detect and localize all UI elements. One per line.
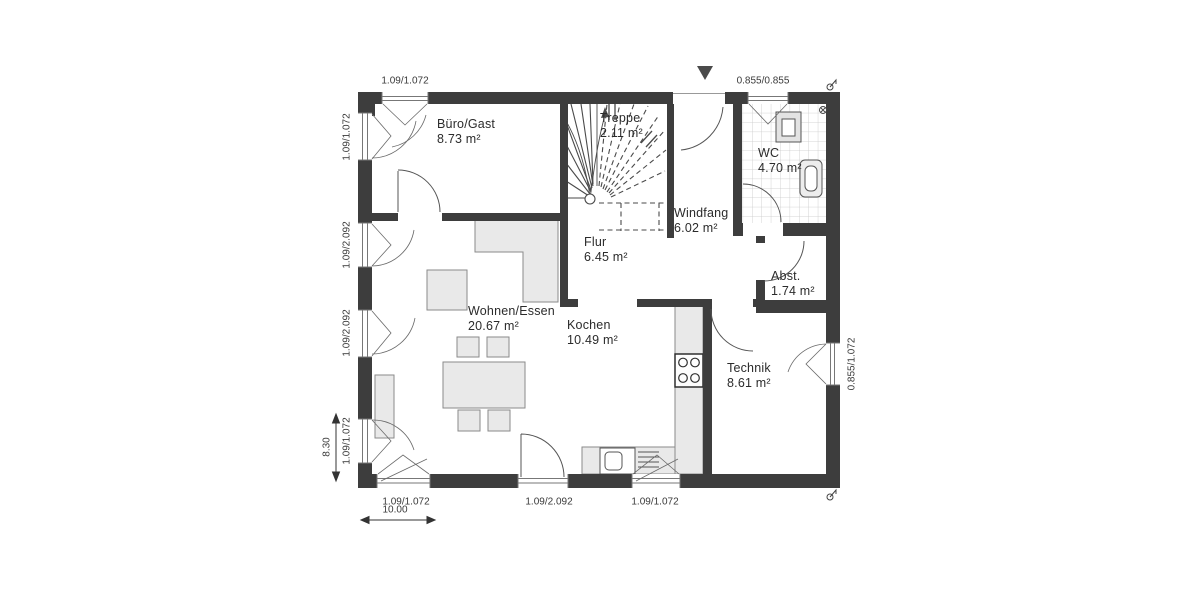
room-label-buero-gast: Büro/Gast 8.73 m² — [437, 117, 495, 147]
stove — [675, 354, 703, 387]
window-top-wc — [748, 92, 788, 104]
window-left-2 — [358, 223, 372, 267]
dim-left-4: 1.09/1.072 — [342, 417, 353, 464]
dim-top-left: 1.09/1.072 — [381, 76, 428, 87]
chair — [458, 410, 480, 431]
wall-abst-bottom — [756, 300, 826, 313]
window-left-4 — [358, 419, 372, 463]
terrace-door-arc — [521, 434, 564, 477]
wall-flur-bottom — [637, 299, 712, 307]
room-label-windfang: Windfang 6.02 m² — [674, 206, 728, 236]
dim-top-right: 0.855/0.855 — [737, 76, 790, 87]
side-table — [427, 270, 467, 310]
window-bottom-2 — [632, 474, 680, 488]
room-label-flur: Flur 6.45 m² — [584, 235, 628, 265]
room-label-technik: Technik 8.61 m² — [727, 361, 771, 391]
sofa-bench — [375, 375, 394, 438]
floorplan-canvas: Büro/Gast 8.73 m² Treppe 2.11 m² WC 4.70… — [0, 0, 1200, 600]
dim-left-3: 1.09/2.092 — [342, 309, 353, 356]
toilet — [800, 160, 822, 197]
chair — [488, 410, 510, 431]
floorplan-drawing — [0, 0, 1200, 600]
window-bottom-1 — [377, 474, 430, 488]
wall-abst-left — [756, 280, 765, 302]
wall-flur-bottom — [560, 299, 578, 307]
terrace-door — [518, 474, 568, 488]
dim-bottom-2: 1.09/2.092 — [525, 497, 572, 508]
furniture — [375, 220, 703, 474]
room-label-abst: Abst. 1.74 m² — [771, 269, 815, 299]
entrance-arrow-icon — [697, 66, 713, 80]
room-label-wohnen-essen: Wohnen/Essen 20.67 m² — [468, 304, 555, 334]
wall-abst-left — [756, 236, 765, 243]
wall-stair-left — [560, 104, 568, 299]
wall-windfang-left — [667, 104, 674, 238]
wall-wc-bottom — [733, 223, 743, 236]
wall-kochen-technik — [703, 299, 712, 474]
wall-technik-jamb — [753, 299, 756, 307]
buero-door-arc — [398, 170, 440, 212]
kitchen-counter-vertical — [675, 306, 703, 474]
dim-left-1: 1.09/1.072 — [342, 113, 353, 160]
benchmark-icon — [827, 490, 836, 500]
room-label-kochen: Kochen 10.49 m² — [567, 318, 618, 348]
wc-sink — [776, 112, 801, 142]
dim-bottom-3: 1.09/1.072 — [631, 497, 678, 508]
stair-newel-post — [585, 194, 595, 204]
dim-right-1: 0.855/1.072 — [847, 338, 858, 391]
wall-wc-bottom — [783, 223, 840, 236]
vent-icon — [820, 107, 827, 114]
chair — [487, 337, 509, 357]
room-label-treppe: Treppe 2.11 m² — [600, 111, 643, 141]
room-label-wc: WC 4.70 m² — [758, 146, 802, 176]
dim-left-2: 1.09/2.092 — [342, 221, 353, 268]
sideboard — [475, 220, 558, 302]
window-left-1 — [358, 113, 372, 160]
wall-exterior-right — [826, 92, 840, 488]
benchmark-icon — [827, 80, 836, 90]
dining-table — [443, 362, 525, 408]
window-top-buero — [382, 92, 428, 104]
chair — [457, 337, 479, 357]
entry-door-arc — [681, 107, 723, 150]
technik-door-arc — [711, 309, 753, 351]
duct-block — [733, 162, 741, 170]
window-right-technik — [826, 343, 840, 385]
wall-corner-block — [358, 92, 375, 116]
window-left-3 — [358, 310, 372, 357]
dim-left-total: 8.30 — [322, 437, 333, 456]
dim-bottom-total: 10.00 — [382, 505, 407, 516]
